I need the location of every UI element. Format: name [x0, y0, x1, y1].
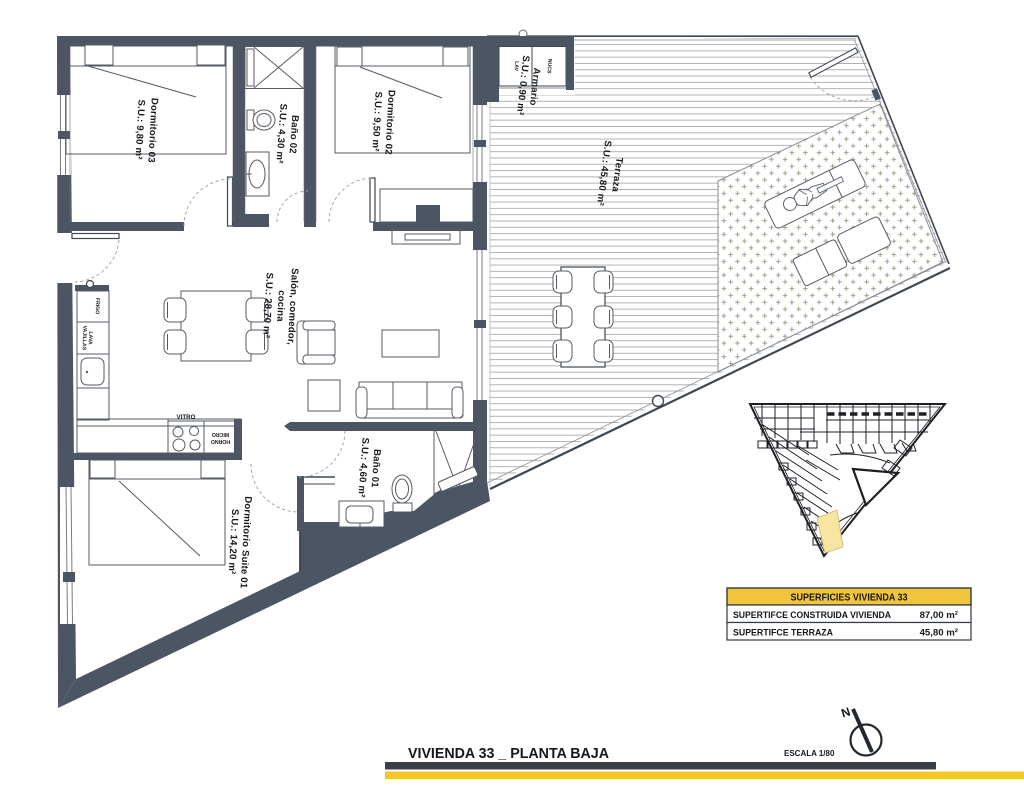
svg-text:Baño 02: Baño 02	[287, 115, 301, 154]
svg-text:SUPERTIFCE CONSTRUIDA VIVIENDA: SUPERTIFCE CONSTRUIDA VIVIENDA	[733, 610, 891, 620]
svg-text:VIVIENDA 33 _ PLANTA BAJA: VIVIENDA 33 _ PLANTA BAJA	[408, 745, 609, 762]
svg-text:HORNO: HORNO	[211, 438, 230, 444]
svg-text:N: N	[839, 704, 852, 720]
svg-text:Dormitorio 03: Dormitorio 03	[145, 98, 159, 163]
svg-text:Baño 01: Baño 01	[369, 449, 383, 489]
svg-text:ESCALA 1/80: ESCALA 1/80	[784, 749, 835, 758]
svg-text:S.U.: 9,50 m²: S.U.: 9,50 m²	[369, 91, 383, 152]
svg-text:SUPERFICIES VIVIENDA 33: SUPERFICIES VIVIENDA 33	[791, 592, 908, 604]
svg-text:S.U.: 4,60 m²: S.U.: 4,60 m²	[355, 437, 370, 498]
svg-text:S.U.: 28,70 m²: S.U.: 28,70 m²	[260, 272, 274, 338]
svg-text:S.U.: 4,30 m²: S.U.: 4,30 m²	[273, 103, 288, 164]
svg-text:NUCS: NUCS	[545, 59, 552, 75]
svg-text:S.U.: 14,20 m²: S.U.: 14,20 m²	[226, 509, 240, 575]
svg-text:Dormitorio 02: Dormitorio 02	[382, 90, 396, 155]
svg-text:S.U.: 9,80 m²: S.U.: 9,80 m²	[132, 99, 146, 160]
svg-text:VAJILLAS: VAJILLAS	[81, 325, 88, 350]
svg-text:45,80 m²: 45,80 m²	[920, 628, 958, 639]
svg-text:87,00 m²: 87,00 m²	[920, 610, 958, 621]
svg-text:VITRO: VITRO	[177, 414, 196, 421]
svg-text:FRIGO: FRIGO	[94, 298, 101, 315]
svg-text:MICRO: MICRO	[212, 431, 229, 437]
svg-text:cocina: cocina	[274, 290, 287, 323]
svg-text:LAV: LAV	[513, 61, 520, 72]
svg-text:SUPERTIFCE TERRAZA: SUPERTIFCE TERRAZA	[733, 628, 833, 638]
